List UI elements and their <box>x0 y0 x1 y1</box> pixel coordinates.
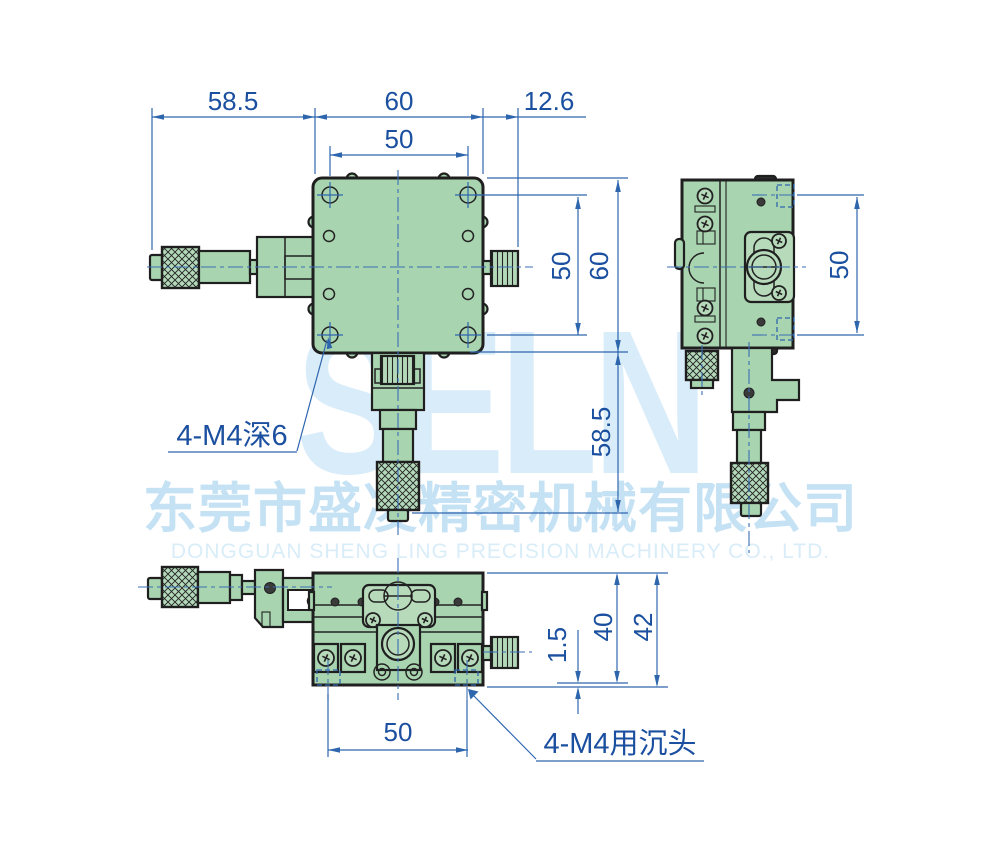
phillips-screw <box>318 650 334 666</box>
phillips-screw <box>772 234 786 248</box>
phillips-screw <box>698 301 713 316</box>
dim-42-front: 42 <box>628 613 658 642</box>
phillips-screw <box>698 217 713 232</box>
side-view <box>667 176 806 553</box>
dim-60-right: 60 <box>584 252 614 281</box>
dim-40-front: 40 <box>588 613 618 642</box>
technical-drawing: 58.5 60 12.6 50 50 60 58.5 <box>0 0 1001 853</box>
thread-note-text: 4-M4深6 <box>176 420 287 452</box>
dim-50-right: 50 <box>546 252 576 281</box>
phillips-screw <box>345 650 361 666</box>
dim-12-6-top: 12.6 <box>524 86 575 116</box>
phillips-screw <box>698 329 713 344</box>
drawing-canvas: SELN 东莞市盛凌精密机械有限公司 DONGGUAN SHENG LING P… <box>0 0 1001 853</box>
counterbore-note: 4-M4用沉头 <box>468 689 704 761</box>
front-plate <box>363 582 435 627</box>
phillips-screw <box>435 650 451 666</box>
dim-58-5-top: 58.5 <box>208 86 259 116</box>
thread-note: 4-M4深6 <box>168 337 332 452</box>
phillips-screw <box>772 286 786 300</box>
dim-60-top: 60 <box>385 86 414 116</box>
counterbore-note-text: 4-M4用沉头 <box>543 727 696 760</box>
phillips-screw <box>462 650 478 666</box>
phillips-screw <box>698 189 713 204</box>
dim-50-front: 50 <box>384 717 413 747</box>
dim-50-side: 50 <box>824 251 854 280</box>
dim-58-5-right: 58.5 <box>586 407 616 458</box>
side-micrometer <box>731 348 799 516</box>
front-micrometer <box>148 567 313 627</box>
front-view <box>138 558 532 700</box>
dim-1-5-front: 1.5 <box>542 627 572 663</box>
right-knob <box>483 251 518 286</box>
dim-50-top: 50 <box>385 124 414 154</box>
